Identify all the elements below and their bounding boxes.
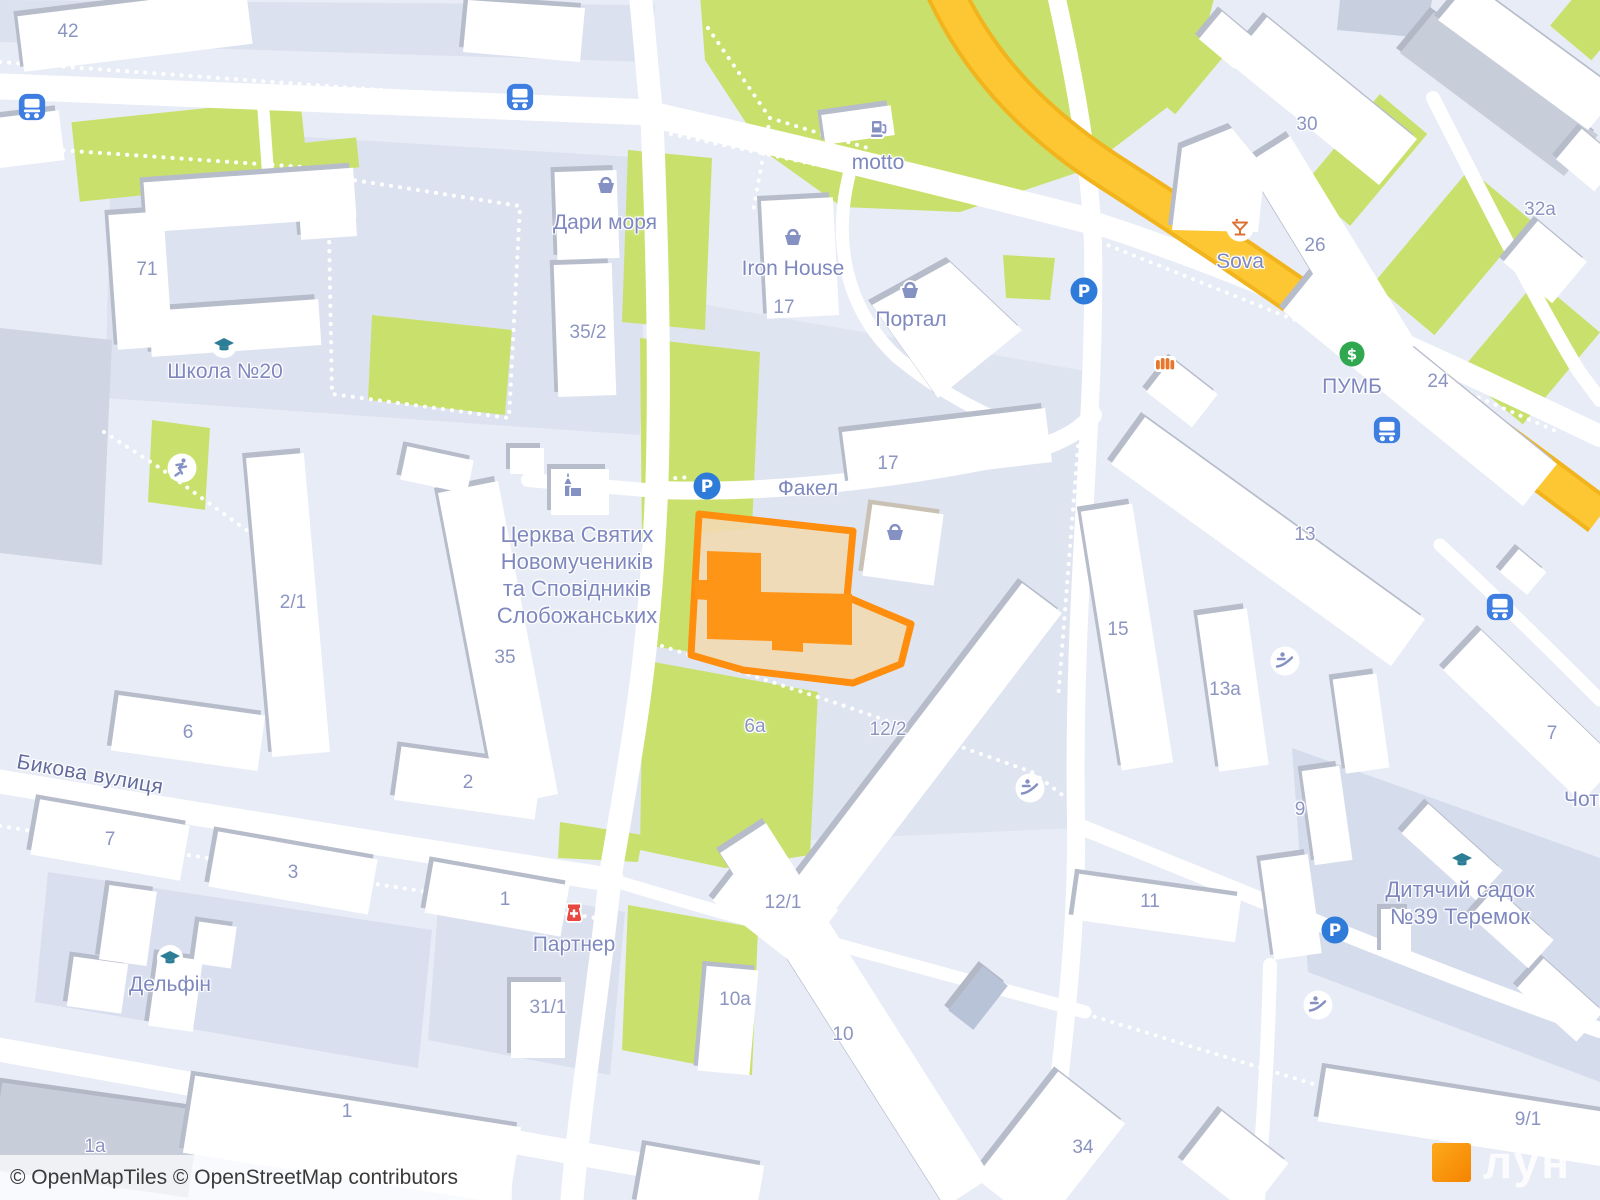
building-in-parcel: [862, 504, 943, 585]
lun-watermark[interactable]: лун: [1432, 1135, 1571, 1189]
attribution-text[interactable]: © OpenMapTiles © OpenStreetMap contribut…: [10, 1166, 458, 1190]
lun-logo-text: лун: [1483, 1135, 1571, 1189]
map-canvas[interactable]: [0, 0, 1600, 1200]
attribution-bar[interactable]: © OpenMapTiles © OpenStreetMap contribut…: [0, 1155, 512, 1200]
map-viewport[interactable]: 4271Школа №20Дари моря35/2Iron House17По…: [0, 0, 1600, 1200]
lun-logo-icon: [1432, 1143, 1471, 1182]
